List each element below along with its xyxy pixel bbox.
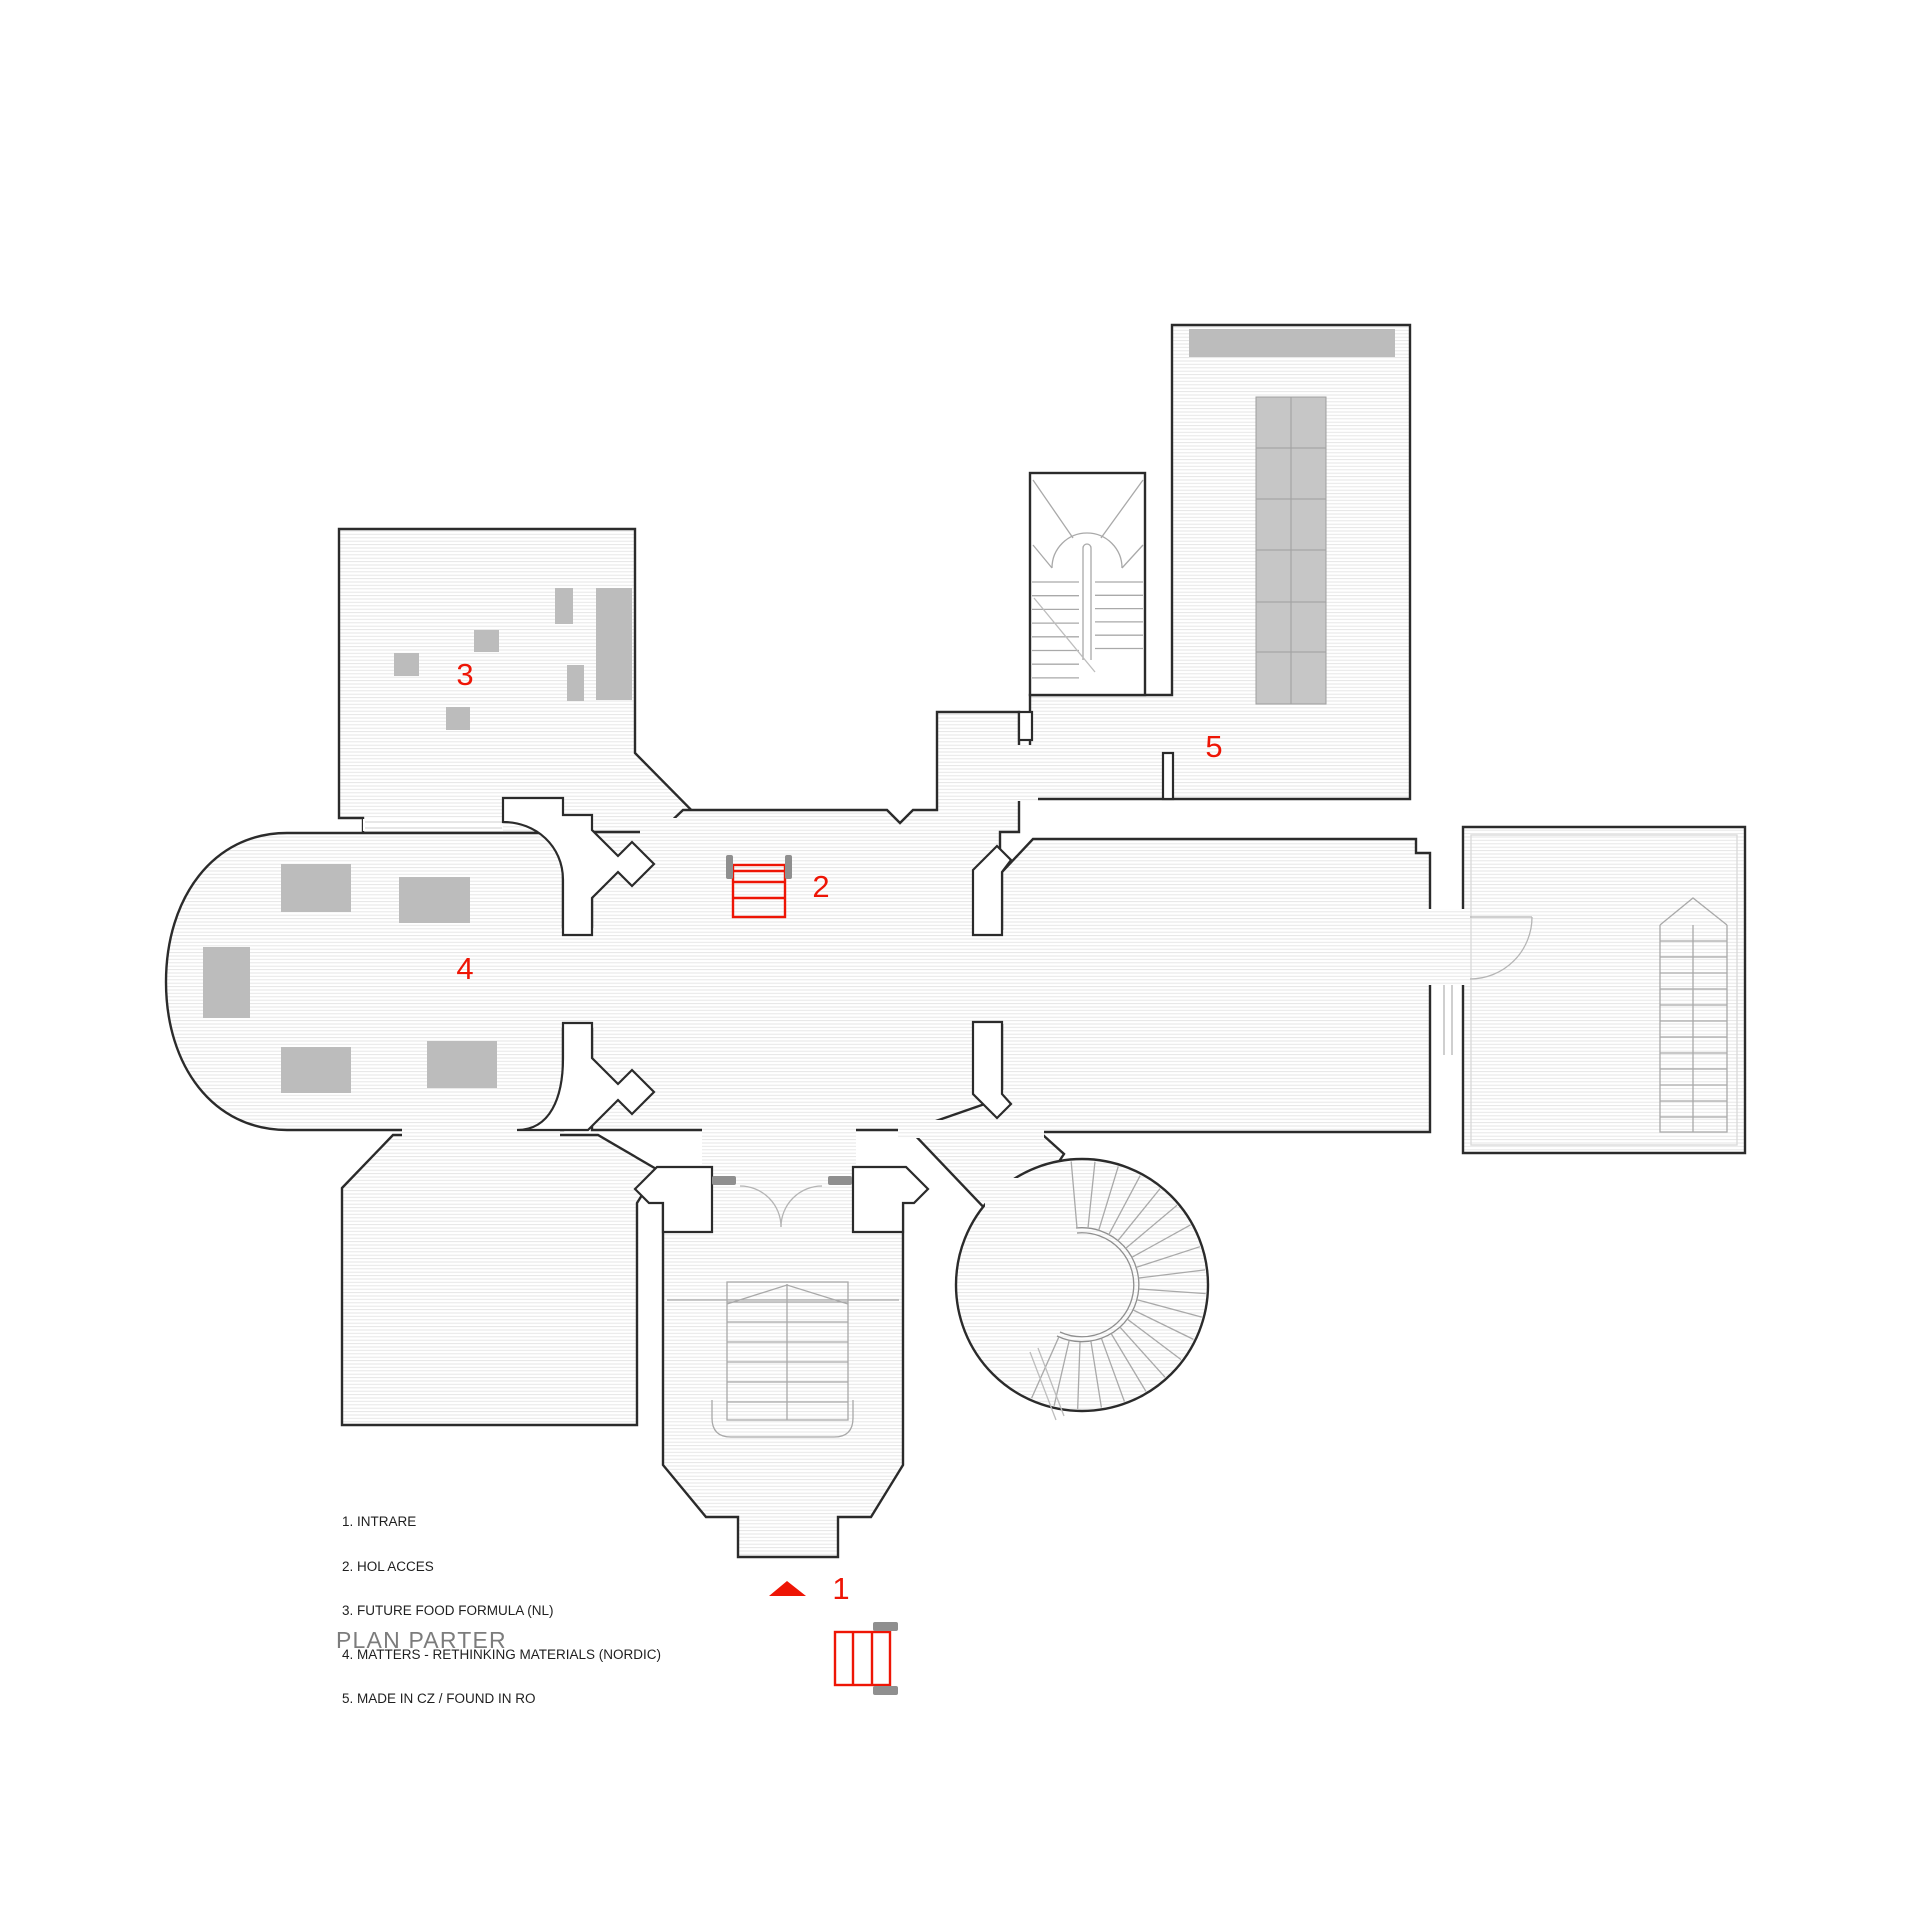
red-entrance-gate-icon bbox=[835, 1632, 890, 1685]
east-room-floor bbox=[1002, 839, 1430, 1132]
legend-item: 5. MADE IN CZ / FOUND IN RO bbox=[342, 1692, 661, 1707]
label-room-2: 2 bbox=[812, 869, 829, 904]
label-room-4: 4 bbox=[456, 951, 473, 986]
wall-stub-connector bbox=[1019, 712, 1032, 740]
right-room-floor bbox=[1463, 827, 1745, 1153]
legend-item: 2. HOL ACCES bbox=[342, 1560, 661, 1575]
legend: 1. INTRARE 2. HOL ACCES 3. FUTURE FOOD F… bbox=[342, 1486, 661, 1721]
floor-plan-page: 3 4 2 5 1 1. INTRARE 2. HOL ACCES 3. FUT… bbox=[0, 0, 1920, 1920]
legend-item: 3. FUTURE FOOD FORMULA (NL) bbox=[342, 1604, 661, 1619]
label-room-5: 5 bbox=[1205, 729, 1222, 764]
wall-gap-band bbox=[363, 819, 503, 831]
legend-item: 1. INTRARE bbox=[342, 1515, 661, 1530]
entrance-hall-floor bbox=[663, 1180, 903, 1557]
glazed-partition bbox=[1444, 985, 1452, 1055]
pier-hall-left bbox=[635, 1167, 712, 1232]
pier-hall-right bbox=[853, 1167, 928, 1232]
building-floor-shapes bbox=[166, 325, 1745, 1557]
entrance-direction-triangle-icon bbox=[769, 1581, 806, 1596]
wall-stub-band5 bbox=[1163, 753, 1173, 799]
label-room-3: 3 bbox=[456, 657, 473, 692]
label-room-1: 1 bbox=[832, 1571, 849, 1606]
page-title: PLAN PARTER bbox=[336, 1627, 507, 1654]
north-stair-room bbox=[1030, 473, 1145, 695]
room-3-floor bbox=[339, 529, 714, 833]
floor-plan-drawing: 3 4 2 5 1 bbox=[0, 0, 1920, 1920]
tile-column bbox=[1256, 397, 1326, 704]
southwest-room-floor bbox=[342, 1135, 658, 1425]
